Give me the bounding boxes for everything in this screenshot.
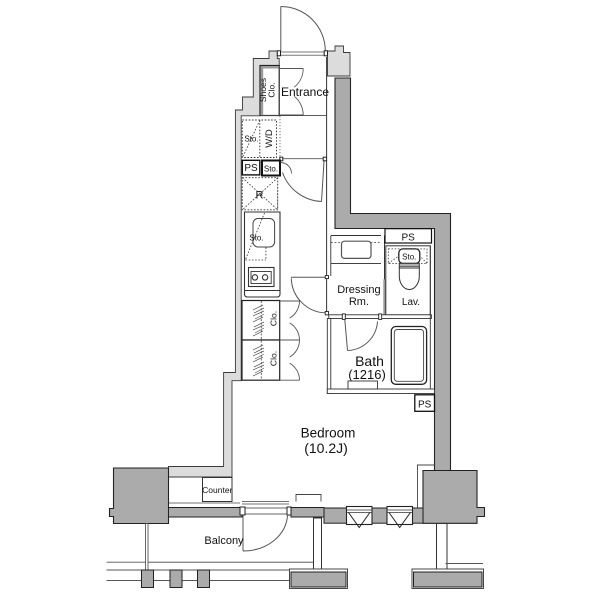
svg-text:Clo.: Clo. — [269, 311, 279, 326]
svg-text:Dressing: Dressing — [337, 284, 380, 296]
svg-text:Sto.: Sto. — [264, 164, 278, 173]
svg-text:(1216): (1216) — [348, 367, 386, 382]
svg-text:(10.2J): (10.2J) — [304, 440, 348, 456]
svg-text:Clo.: Clo. — [269, 351, 279, 366]
svg-text:Balcony: Balcony — [204, 535, 244, 547]
svg-text:R: R — [256, 190, 264, 202]
svg-text:W/D: W/D — [264, 129, 275, 148]
svg-text:Bedroom: Bedroom — [301, 426, 356, 441]
svg-text:PS: PS — [402, 233, 416, 244]
svg-text:Counter: Counter — [202, 485, 232, 495]
svg-text:PS: PS — [418, 399, 432, 410]
svg-text:PS: PS — [244, 163, 258, 174]
svg-text:Sto.: Sto. — [249, 234, 263, 243]
svg-text:Sto.: Sto. — [402, 253, 416, 262]
svg-text:Entrance: Entrance — [281, 85, 329, 99]
svg-text:Lav.: Lav. — [402, 297, 420, 308]
svg-text:Rm.: Rm. — [349, 296, 369, 308]
svg-text:Sto.: Sto. — [244, 135, 258, 144]
svg-text:Clo.: Clo. — [267, 82, 277, 97]
